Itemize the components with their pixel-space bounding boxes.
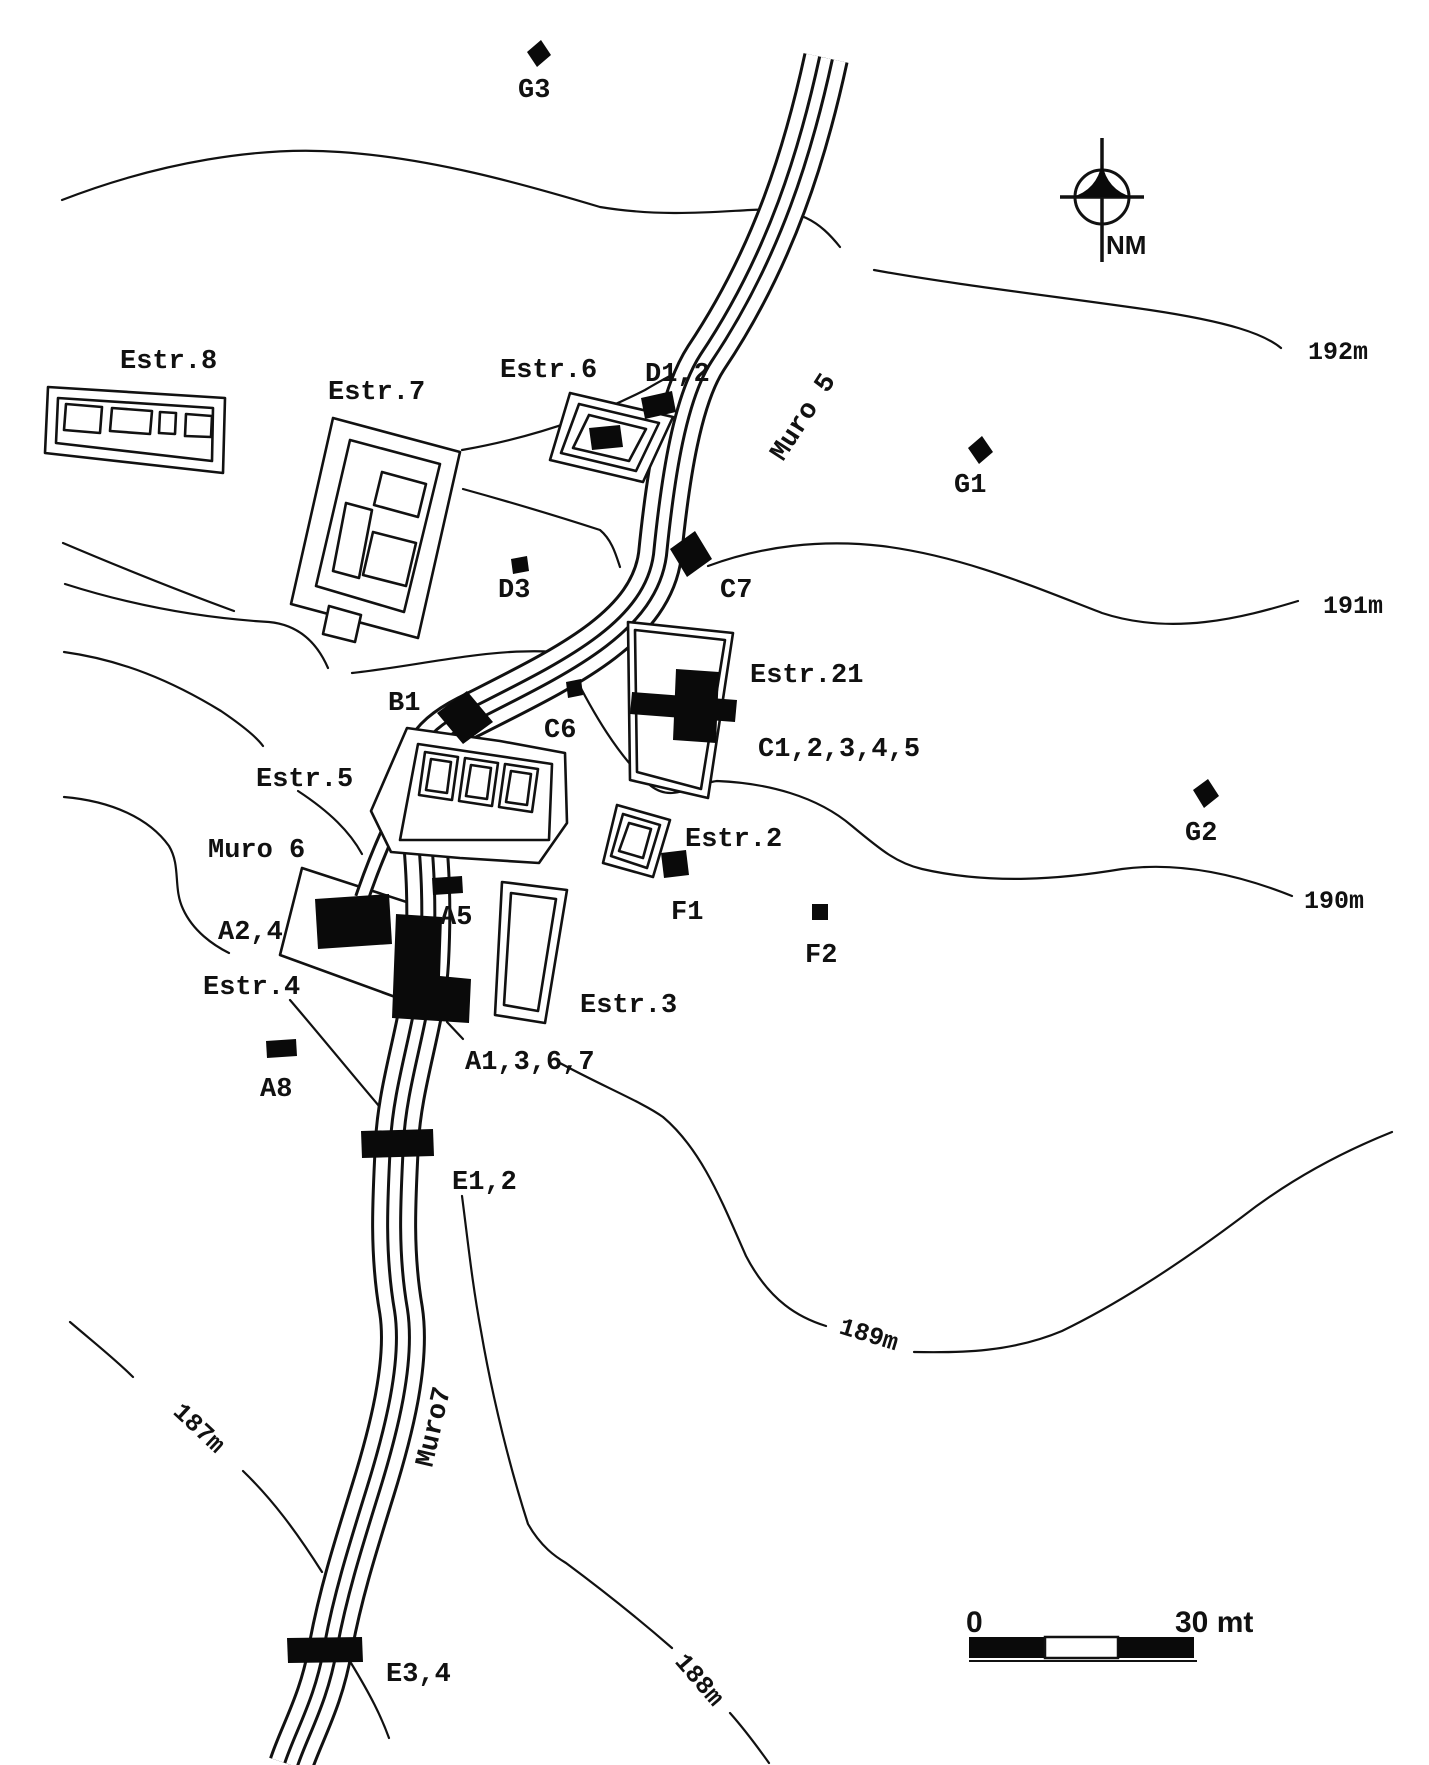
- structure-estr8-room3: [159, 412, 176, 434]
- leader-a1367: [447, 1022, 463, 1039]
- label-estr5: Estr.5: [256, 765, 353, 795]
- label-estr2: Estr.2: [685, 825, 782, 855]
- label-e34: E3,4: [386, 1660, 451, 1690]
- track-branch-e34: [351, 1663, 389, 1738]
- trench-c6: [566, 679, 583, 698]
- north-label: NM: [1106, 230, 1146, 260]
- leader-estr5: [298, 791, 362, 854]
- label-estr3: Estr.3: [580, 991, 677, 1021]
- site-plan-map: NM 0 30 mt G3 Estr.8 Estr.7 Estr.6 D1,2 …: [0, 0, 1429, 1765]
- label-g3: G3: [518, 76, 550, 106]
- marker-g3: [527, 40, 551, 67]
- scale-bar-segment-1: [969, 1637, 1045, 1658]
- label-contour-190m: 190m: [1304, 887, 1364, 916]
- label-a5: A5: [440, 903, 472, 933]
- contour-fragment-left-1: [63, 543, 234, 611]
- label-c7: C7: [720, 576, 752, 606]
- contour-188m-tail: [730, 1713, 769, 1763]
- marker-g2: [1193, 779, 1219, 808]
- label-g1: G1: [954, 471, 986, 501]
- label-estr6: Estr.6: [500, 356, 597, 386]
- label-estr4: Estr.4: [203, 973, 300, 1003]
- contour-189m-west: [558, 1062, 826, 1326]
- structure-estr8-room1: [64, 404, 102, 433]
- label-muro5: Muro 5: [765, 369, 843, 467]
- label-c12345: C1,2,3,4,5: [758, 735, 920, 765]
- label-a1367: A1,3,6,7: [465, 1048, 595, 1078]
- label-f2: F2: [805, 941, 837, 971]
- trench-a8: [266, 1039, 297, 1058]
- label-estr21: Estr.21: [750, 661, 863, 691]
- label-contour-188m: 188m: [668, 1648, 729, 1712]
- scale-bar-segment-3: [1118, 1637, 1194, 1658]
- structure-estr8-room2: [110, 408, 152, 434]
- trench-a5: [432, 876, 463, 895]
- structure-estr3-group: [495, 882, 567, 1023]
- marker-g1: [968, 436, 993, 464]
- structure-estr5-comp2i: [466, 765, 491, 799]
- contour-fragment-left-3: [64, 652, 263, 746]
- label-muro6: Muro 6: [208, 836, 305, 866]
- contour-187m-west: [70, 1322, 133, 1377]
- site-plan-page: NM 0 30 mt G3 Estr.8 Estr.7 Estr.6 D1,2 …: [0, 0, 1429, 1765]
- scale-bar: 0 30 mt: [966, 1606, 1253, 1661]
- trench-e34: [287, 1637, 363, 1663]
- label-g2: G2: [1185, 819, 1217, 849]
- label-a24: A2,4: [218, 918, 283, 948]
- label-e12: E1,2: [452, 1168, 517, 1198]
- contour-191m-east: [708, 543, 1298, 624]
- structure-estr5-comp3i: [506, 771, 531, 805]
- label-estr7: Estr.7: [328, 378, 425, 408]
- contour-187m-east: [243, 1471, 322, 1572]
- trench-c12345-block: [673, 669, 719, 743]
- structure-estr8-room4: [185, 414, 212, 437]
- structure-estr8-group: [45, 387, 225, 473]
- scale-bar-segment-2: [1045, 1637, 1118, 1658]
- contour-188m-west: [462, 1196, 672, 1648]
- north-arrow: NM: [1060, 138, 1146, 262]
- label-contour-189m: 189m: [836, 1313, 902, 1358]
- contour-192m-west: [62, 151, 840, 247]
- label-d12: D1,2: [645, 360, 710, 390]
- trench-d3: [511, 556, 529, 574]
- label-d3: D3: [498, 576, 530, 606]
- label-contour-192m: 192m: [1308, 338, 1368, 367]
- trench-a24: [315, 894, 392, 949]
- structure-estr7-roomC: [363, 532, 416, 586]
- contour-189m-east: [914, 1132, 1392, 1352]
- label-b1: B1: [388, 689, 420, 719]
- trench-e12: [361, 1129, 434, 1158]
- label-f1: F1: [671, 898, 703, 928]
- trench-estr6-center: [589, 425, 623, 450]
- label-c6: C6: [544, 716, 576, 746]
- contour-fragment-left-4: [64, 797, 229, 953]
- structure-estr7-group: [291, 418, 460, 642]
- contour-192m-east: [874, 270, 1281, 348]
- trench-f2: [812, 904, 828, 920]
- leader-estr4: [290, 1000, 379, 1106]
- structure-estr2-group: [603, 805, 670, 877]
- scale-end-label: 30 mt: [1175, 1606, 1253, 1639]
- structure-estr5-group: [371, 728, 567, 863]
- label-a8: A8: [260, 1075, 292, 1105]
- contour-fragment-estr7-east: [463, 489, 620, 567]
- contour-lines: [62, 151, 1392, 1763]
- label-contour-187m: 187m: [167, 1398, 231, 1460]
- structure-estr5-comp1i: [426, 759, 451, 793]
- label-estr8: Estr.8: [120, 347, 217, 377]
- scale-zero-label: 0: [966, 1606, 983, 1639]
- label-contour-191m: 191m: [1323, 592, 1383, 621]
